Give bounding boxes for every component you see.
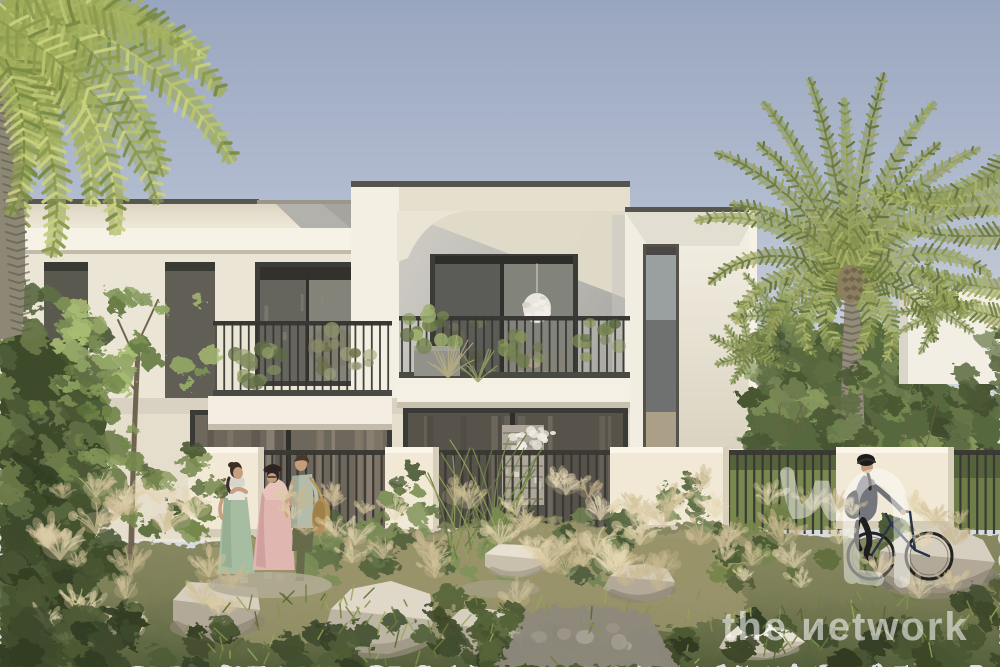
svg-text:the иetwork: the иetwork xyxy=(722,605,969,649)
